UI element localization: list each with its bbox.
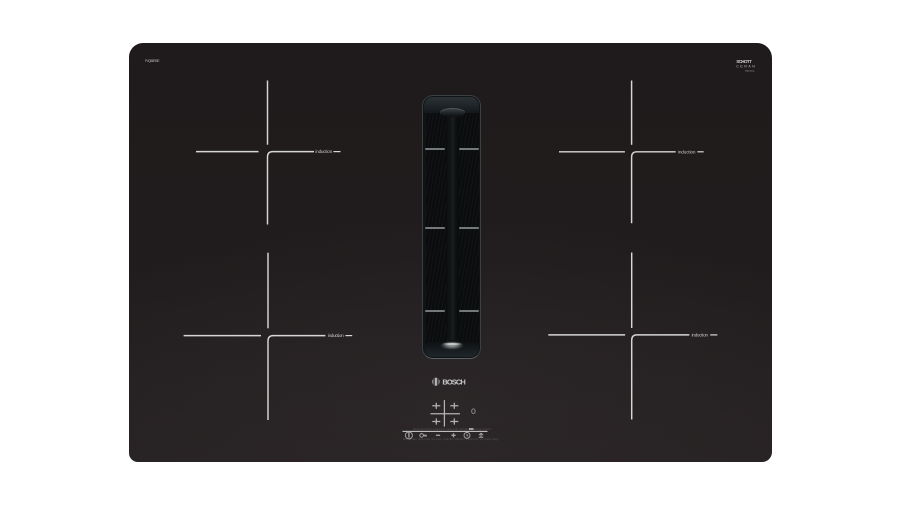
svg-text:SCHOTT: SCHOTT — [736, 59, 752, 64]
svg-text:induction: induction — [678, 149, 696, 154]
svg-text:Made in Germany: Made in Germany — [745, 69, 756, 72]
svg-text:C E R A N: C E R A N — [736, 64, 755, 68]
svg-text:induction: induction — [328, 333, 344, 338]
svg-text:abc defghi jklmnopq rstuvwx yz: abc defghi jklmnopq rstuvwx yzabcde fghi… — [403, 438, 499, 441]
svg-text:induction: induction — [692, 333, 709, 338]
svg-text:BOSCH: BOSCH — [442, 378, 466, 387]
svg-text:induction: induction — [315, 149, 332, 154]
svg-text:PVQ811F15E: PVQ811F15E — [145, 59, 160, 63]
svg-text:abcdefg hijklm nopqrstu vwxyza: abcdefg hijklm nopqrstu vwxyzab cdefghij… — [413, 428, 491, 431]
